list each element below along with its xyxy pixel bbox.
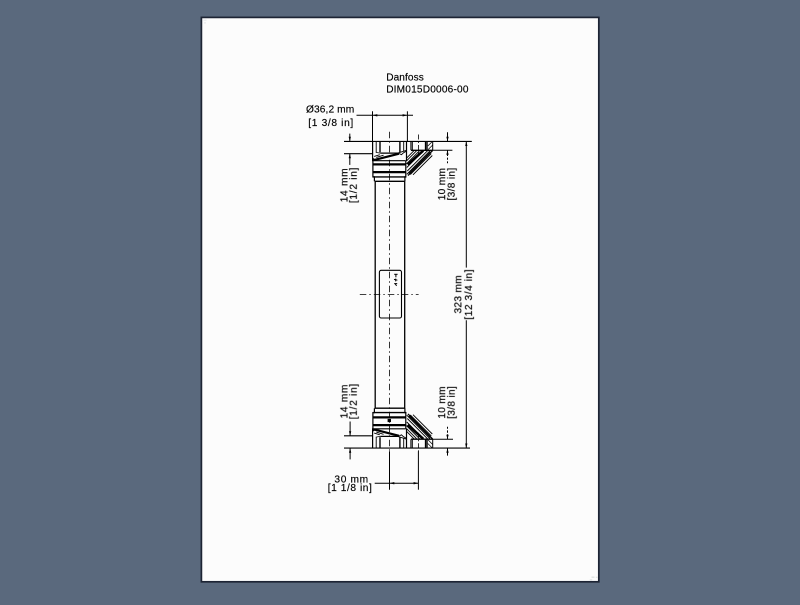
svg-text:[1/2 in]: [1/2 in]: [349, 167, 360, 203]
svg-text:[3/8 in]: [3/8 in]: [447, 386, 458, 419]
svg-text:323 mm: 323 mm: [453, 275, 464, 314]
svg-text:[3/8 in]: [3/8 in]: [447, 168, 458, 201]
svg-text:Danfoss: Danfoss: [386, 73, 424, 84]
svg-text:[1 1/8 in]: [1 1/8 in]: [328, 483, 373, 494]
svg-text:DIM015D0006-00: DIM015D0006-00: [386, 85, 469, 96]
svg-text:[1/2 in]: [1/2 in]: [349, 383, 360, 419]
svg-text:[1 3/8 in]: [1 3/8 in]: [308, 118, 354, 129]
svg-text:[12 3/4 in]: [12 3/4 in]: [464, 269, 475, 320]
svg-text:Ø36,2 mm: Ø36,2 mm: [306, 104, 354, 115]
